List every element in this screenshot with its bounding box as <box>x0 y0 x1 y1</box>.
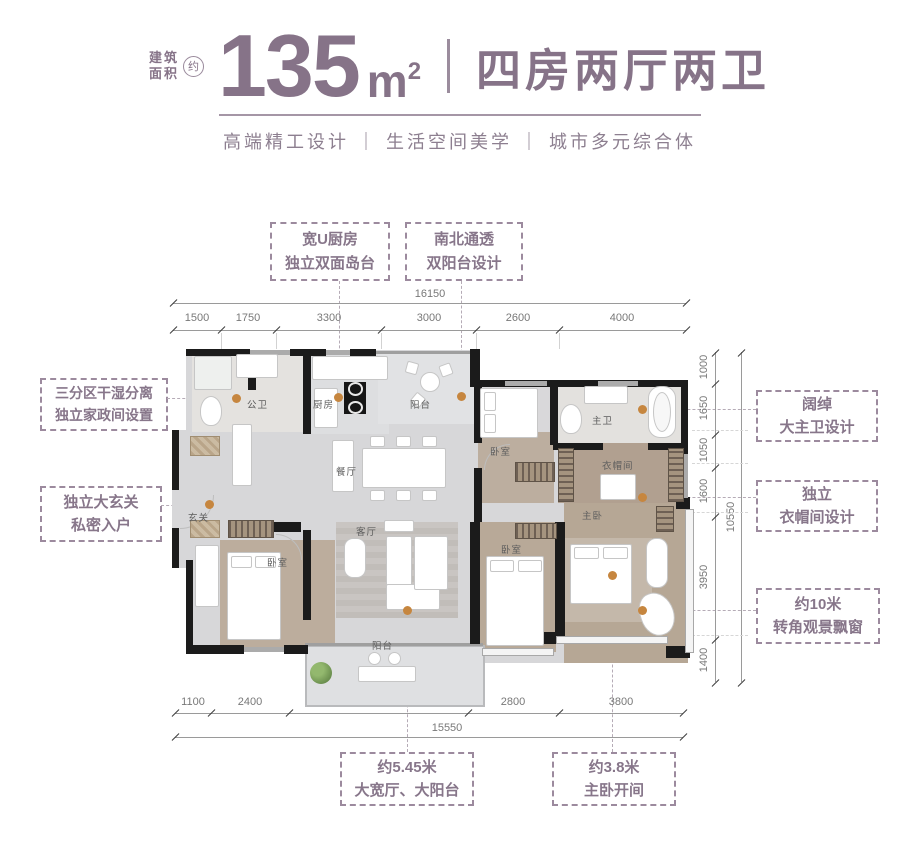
approx-badge: 约 <box>183 56 204 77</box>
ext-line <box>276 333 277 349</box>
dim-right-seg-0: 1000 <box>698 345 710 389</box>
balcony-table <box>420 372 440 392</box>
dim-top-seg-1: 1750 <box>223 312 273 324</box>
area-unit-base: m <box>367 55 408 107</box>
callout-dual-balcony: 南北通透 双阳台设计 <box>405 222 523 281</box>
room-label-dining: 餐厅 <box>336 464 357 478</box>
marker-dot-north-balcony <box>457 392 466 401</box>
callout-wide-hall-line1: 约5.45米 <box>377 756 436 779</box>
room-label-kitchen: 厨房 <box>313 397 334 411</box>
utility-cabinet <box>232 424 252 486</box>
wall-segment <box>555 522 565 638</box>
floorplan-poster: 建筑 面积 约 135 m2 四房两厅两卫 高端精工设计 ｜ 生活空间美学 ｜ … <box>0 0 919 857</box>
shower <box>194 356 232 390</box>
wall-segment <box>273 522 301 532</box>
callout-wide-hall-line2: 大宽厅、大阳台 <box>354 779 459 802</box>
callout-master-bath-line1: 阔绰 <box>802 393 832 416</box>
toilet-master <box>560 404 582 434</box>
wardrobe-bedroom-c <box>515 462 555 482</box>
area-caption: 建筑 面积 约 <box>149 50 204 83</box>
pillow <box>231 556 252 568</box>
window-master-south <box>556 636 668 644</box>
callout-master-span-line2: 主卧开间 <box>584 779 644 802</box>
wall-segment <box>186 560 193 652</box>
dim-right-seg-3: 1600 <box>698 469 710 513</box>
room-label-guest-bath: 公卫 <box>247 397 268 411</box>
room-label-master-bedroom: 主卧 <box>582 508 603 522</box>
wall-segment <box>550 385 558 445</box>
dim-right-seg-1: 1650 <box>698 386 710 430</box>
callout-master-bath-line2: 大主卫设计 <box>779 416 854 439</box>
stove <box>344 382 366 414</box>
master-bench <box>646 538 668 588</box>
balcony-stool <box>368 652 381 665</box>
dim-right-total: 10550 <box>725 495 737 539</box>
dining-table <box>362 448 446 488</box>
wall-segment <box>186 645 244 654</box>
callout-bay-window: 约10米 转角观景飘窗 <box>756 588 880 644</box>
room-label-north-balcony: 阳台 <box>410 397 431 411</box>
dining-chair <box>370 436 385 447</box>
room-label-bedroom-b: 卧室 <box>501 542 522 556</box>
dim-top-total-line <box>173 303 686 304</box>
master-wardrobe <box>656 506 674 532</box>
room-label-cloakroom: 衣帽间 <box>602 458 634 472</box>
area-caption-line1: 建筑 <box>149 50 179 66</box>
bathtub-basin <box>653 392 671 432</box>
ext-line <box>381 333 382 349</box>
room-label-bedroom-c: 卧室 <box>490 444 511 458</box>
marker-dot-guest-bath <box>232 394 241 403</box>
dim-top-total: 16150 <box>400 288 460 300</box>
dim-bottom-total: 15550 <box>417 722 477 734</box>
bay-window-right <box>685 509 694 653</box>
dim-bottom-seg-3: 2800 <box>488 696 538 708</box>
callout-kitchen: 宽U厨房 独立双面岛台 <box>270 222 390 281</box>
room-label-living: 客厅 <box>356 524 377 538</box>
wall-segment <box>172 430 179 490</box>
callout-foyer-line1: 独立大玄关 <box>63 491 138 514</box>
toilet-guest <box>200 396 222 426</box>
header: 建筑 面积 约 135 m2 四房两厅两卫 高端精工设计 ｜ 生活空间美学 ｜ … <box>0 28 919 154</box>
dim-bottom-seg-1: 2400 <box>225 696 275 708</box>
area-unit: m2 <box>367 49 421 104</box>
window-segment <box>326 350 350 355</box>
dining-chair <box>422 490 437 501</box>
dim-bottom-seg-0: 1100 <box>168 696 218 708</box>
dim-top-seg-line <box>173 330 686 331</box>
ext-line <box>692 430 748 431</box>
dim-top-seg-5: 4000 <box>597 312 647 324</box>
dining-chair <box>370 490 385 501</box>
room-label-south-balcony: 阳台 <box>372 638 393 652</box>
pillow <box>490 560 514 572</box>
plant <box>310 662 332 684</box>
callout-master-bath: 阔绰 大主卫设计 <box>756 390 878 442</box>
pillow <box>574 547 599 559</box>
title-row: 建筑 面积 约 135 m2 四房两厅两卫 <box>0 28 919 104</box>
callout-wide-hall: 约5.45米 大宽厅、大阳台 <box>340 752 474 806</box>
callout-foyer: 独立大玄关 私密入户 <box>40 486 162 542</box>
balcony-bench <box>358 666 416 682</box>
area-value: 135 <box>218 28 359 104</box>
wall-segment <box>474 468 482 522</box>
pillow <box>603 547 628 559</box>
marker-dot-master-bed <box>608 571 617 580</box>
dim-right-seg-5: 1400 <box>698 638 710 682</box>
wall-segment <box>303 530 311 620</box>
balcony-stool <box>388 652 401 665</box>
wall-segment <box>470 522 480 644</box>
area-caption-line2: 面积 <box>149 66 179 82</box>
ext-line <box>221 333 222 349</box>
marker-dot-bay-window <box>638 606 647 615</box>
kitchen-counter <box>312 356 388 380</box>
callout-kitchen-line2: 独立双面岛台 <box>285 252 375 275</box>
wall-segment <box>350 349 376 356</box>
callout-cloakroom: 独立 衣帽间设计 <box>756 480 878 532</box>
marker-dot-master-bath <box>638 405 647 414</box>
callout-bay-window-line2: 转角观景飘窗 <box>773 616 863 639</box>
marker-dot-cloakroom <box>638 493 647 502</box>
marker-dot-foyer <box>205 500 214 509</box>
layout-type-text: 四房两厅两卫 <box>476 34 770 99</box>
subtitle: 高端精工设计 ｜ 生活空间美学 ｜ 城市多元综合体 <box>0 128 919 154</box>
coffee-table <box>344 538 366 578</box>
foyer-cabinet-top <box>190 436 220 456</box>
callout-bay-window-line1: 约10米 <box>795 593 842 616</box>
callout-dual-balcony-line1: 南北通透 <box>434 228 494 251</box>
dim-bottom-total-line <box>175 737 683 738</box>
room-label-bedroom-a: 卧室 <box>267 555 288 569</box>
callout-wet-dry-line1: 三分区干湿分离 <box>55 383 153 405</box>
ext-line <box>559 333 560 349</box>
window-bedroom-b-south <box>482 648 554 656</box>
dim-bottom-seg-line <box>175 713 683 714</box>
dining-chair <box>396 490 411 501</box>
callout-master-span-line1: 约3.8米 <box>589 756 640 779</box>
area-caption-text: 建筑 面积 <box>149 50 179 83</box>
callout-cloakroom-line2: 衣帽间设计 <box>779 506 854 529</box>
dim-top-seg-4: 2600 <box>493 312 543 324</box>
tv-console <box>384 520 414 532</box>
ext-line <box>476 333 477 349</box>
cloakroom-island <box>600 474 636 500</box>
bedroom-a-cabinet <box>195 545 219 607</box>
pillow <box>484 414 496 433</box>
wall-segment <box>470 349 480 387</box>
title-divider <box>447 39 450 93</box>
ext-line <box>692 635 748 636</box>
pillow <box>518 560 542 572</box>
cloakroom-wardrobe-left <box>558 448 574 502</box>
dim-top-seg-0: 1500 <box>172 312 222 324</box>
window-segment <box>244 647 284 652</box>
callout-cloakroom-line1: 独立 <box>802 483 832 506</box>
laundry-counter <box>236 354 278 378</box>
callout-wet-dry: 三分区干湿分离 独立家政间设置 <box>40 378 168 431</box>
callout-kitchen-line1: 宽U厨房 <box>302 228 358 251</box>
dim-top-seg-2: 3300 <box>304 312 354 324</box>
ext-line <box>692 512 748 513</box>
vanity-master <box>584 386 628 404</box>
room-label-master-bath: 主卫 <box>592 413 613 427</box>
room-label-foyer: 玄关 <box>188 510 209 524</box>
callout-dual-balcony-line2: 双阳台设计 <box>426 252 501 275</box>
window-segment <box>505 381 547 386</box>
cloakroom-wardrobe-right <box>668 448 684 502</box>
dining-chair <box>396 436 411 447</box>
dim-right-total-line <box>741 352 742 682</box>
wall-segment <box>284 645 308 654</box>
marker-dot-kitchen <box>334 393 343 402</box>
marker-dot-living <box>403 606 412 615</box>
study-desk <box>414 536 448 590</box>
wall-segment <box>172 528 179 568</box>
balcony-edge <box>376 351 480 354</box>
dim-right-seg-4: 3950 <box>698 555 710 599</box>
ext-line <box>692 463 748 464</box>
wall-segment <box>303 352 311 434</box>
dim-bottom-seg-4: 3800 <box>596 696 646 708</box>
pillow <box>484 392 496 411</box>
area-unit-sup: 2 <box>408 58 421 85</box>
dim-right-seg-2: 1050 <box>698 428 710 472</box>
callout-foyer-line2: 私密入户 <box>71 514 131 537</box>
callout-master-span: 约3.8米 主卧开间 <box>552 752 676 806</box>
balcony-edge <box>305 643 483 646</box>
dim-top-seg-3: 3000 <box>404 312 454 324</box>
dining-chair <box>422 436 437 447</box>
wardrobe-bedroom-b <box>515 523 557 539</box>
wardrobe-bedroom-a <box>228 520 274 538</box>
callout-wet-dry-line2: 独立家政间设置 <box>55 405 153 427</box>
